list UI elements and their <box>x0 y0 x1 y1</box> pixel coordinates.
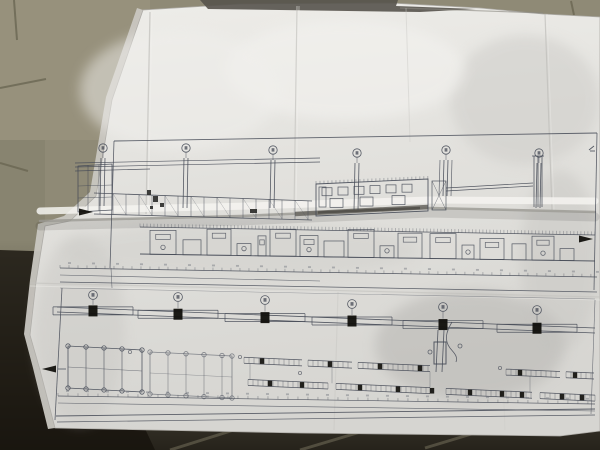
photo-of-folded-engineering-drawing <box>0 0 600 450</box>
blueprint-photo-canvas <box>0 0 600 450</box>
